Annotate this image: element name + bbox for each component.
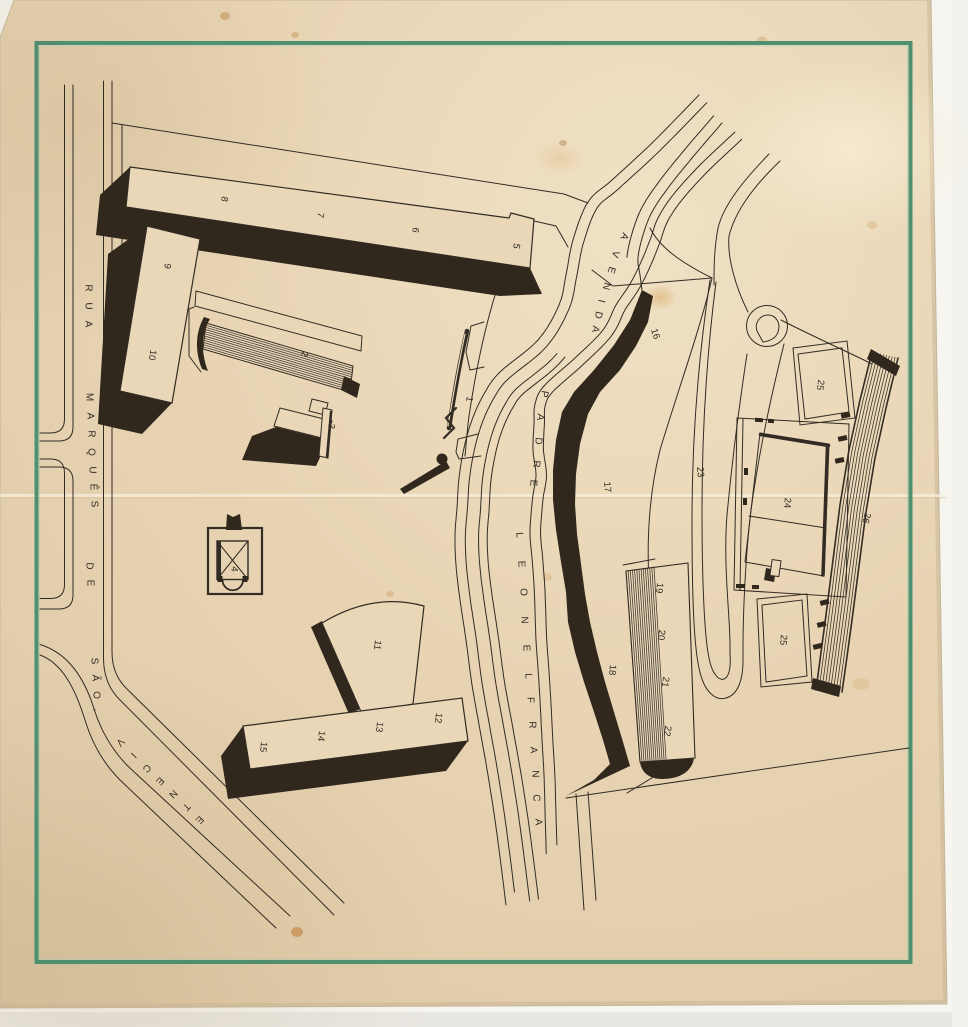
- svg-text:A: A: [532, 819, 543, 826]
- svg-text:L: L: [522, 673, 533, 679]
- svg-text:O: O: [91, 691, 102, 699]
- svg-text:12: 12: [432, 712, 444, 724]
- svg-text:R: R: [86, 430, 97, 437]
- svg-text:A: A: [85, 413, 96, 420]
- svg-text:F: F: [524, 697, 535, 703]
- svg-text:11: 11: [371, 639, 383, 650]
- svg-text:15: 15: [257, 741, 269, 753]
- svg-text:Ã: Ã: [90, 675, 103, 682]
- svg-text:D: D: [532, 437, 544, 445]
- svg-text:M: M: [84, 393, 95, 401]
- svg-text:Q: Q: [86, 448, 97, 456]
- svg-text:14: 14: [315, 730, 327, 742]
- svg-text:E: E: [515, 560, 526, 567]
- svg-text:A: A: [527, 747, 538, 754]
- svg-text:N: N: [529, 770, 540, 777]
- svg-text:D: D: [84, 562, 95, 569]
- svg-text:R: R: [83, 284, 94, 291]
- svg-text:18: 18: [606, 664, 618, 675]
- svg-text:25: 25: [814, 379, 826, 391]
- svg-text:E: E: [527, 479, 538, 487]
- svg-text:10: 10: [146, 349, 159, 361]
- svg-text:22: 22: [661, 725, 674, 737]
- svg-text:Ê: Ê: [88, 484, 101, 491]
- svg-text:C: C: [530, 794, 541, 801]
- svg-text:,: ,: [92, 709, 103, 712]
- svg-text:U: U: [87, 466, 98, 473]
- svg-text:O: O: [517, 588, 528, 596]
- svg-text:L: L: [513, 532, 524, 538]
- svg-text:25: 25: [777, 634, 789, 645]
- svg-text:S: S: [89, 658, 100, 665]
- svg-text:S: S: [89, 501, 100, 508]
- svg-text:R: R: [530, 460, 541, 468]
- svg-text:13: 13: [373, 721, 385, 733]
- svg-text:20: 20: [655, 629, 667, 641]
- svg-text:19: 19: [653, 582, 665, 594]
- svg-text:21: 21: [659, 676, 671, 688]
- svg-text:4: 4: [228, 566, 239, 572]
- svg-text:N: N: [518, 616, 529, 624]
- svg-text:E: E: [85, 580, 96, 587]
- svg-text:R: R: [526, 721, 537, 728]
- svg-text:E: E: [520, 644, 531, 651]
- svg-text:23: 23: [694, 466, 706, 477]
- svg-text:24: 24: [781, 497, 793, 508]
- svg-text:A: A: [83, 321, 94, 328]
- svg-text:17: 17: [601, 481, 613, 492]
- svg-text:U: U: [83, 302, 94, 309]
